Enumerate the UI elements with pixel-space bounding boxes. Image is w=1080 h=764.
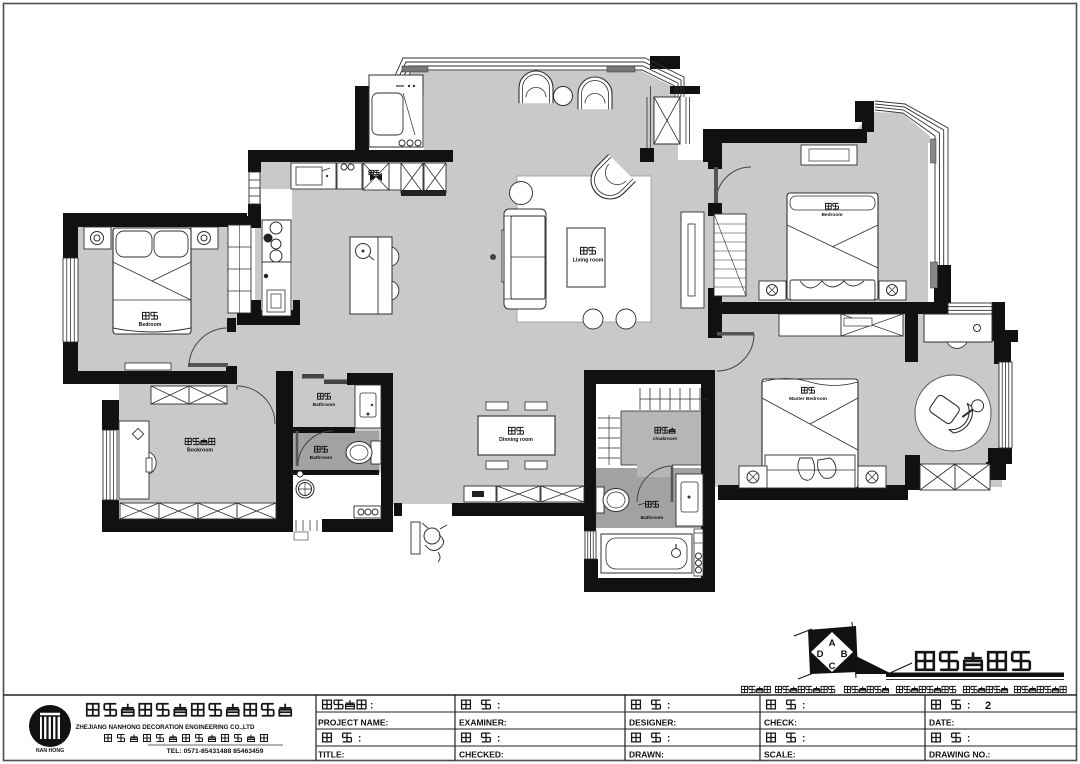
svg-text:Bookroom: Bookroom bbox=[187, 448, 213, 454]
svg-text:Bathroom: Bathroom bbox=[310, 455, 333, 461]
svg-text:NAN HONG: NAN HONG bbox=[36, 748, 64, 754]
svg-text:A: A bbox=[829, 638, 836, 649]
svg-text::: : bbox=[802, 734, 805, 745]
svg-text:Bedroom: Bedroom bbox=[139, 322, 162, 328]
svg-text:SCALE:: SCALE: bbox=[764, 750, 796, 760]
svg-text:EXAMINER:: EXAMINER: bbox=[459, 718, 507, 728]
svg-text::: : bbox=[358, 734, 361, 745]
svg-text:B: B bbox=[841, 649, 848, 660]
svg-text:2: 2 bbox=[985, 700, 991, 712]
svg-text:CHECK:: CHECK: bbox=[764, 718, 797, 728]
svg-text::: : bbox=[967, 734, 970, 745]
svg-text:TITLE:: TITLE: bbox=[318, 750, 345, 760]
svg-text:CHECKED:: CHECKED: bbox=[459, 750, 504, 760]
svg-text:Bathroom: Bathroom bbox=[641, 515, 664, 521]
svg-text:Dinning room: Dinning room bbox=[499, 437, 533, 443]
svg-text::: : bbox=[667, 734, 670, 745]
svg-text:D: D bbox=[817, 649, 824, 660]
svg-text::: : bbox=[967, 701, 970, 712]
svg-text:Master Bedroom: Master Bedroom bbox=[789, 396, 827, 402]
svg-text:DRAWN:: DRAWN: bbox=[629, 750, 664, 760]
svg-text:TEL: 0571-85431488 85463459: TEL: 0571-85431488 85463459 bbox=[167, 748, 264, 755]
svg-text:PROJECT NAME:: PROJECT NAME: bbox=[318, 718, 389, 728]
svg-text:ZHEJIANG NANHONG DECORATION EN: ZHEJIANG NANHONG DECORATION ENGINEERING … bbox=[76, 724, 255, 731]
svg-text:Bedroom: Bedroom bbox=[821, 212, 842, 218]
svg-text::: : bbox=[497, 734, 500, 745]
svg-text::: : bbox=[667, 701, 670, 712]
svg-text::: : bbox=[802, 701, 805, 712]
svg-text:DRAWING NO.:: DRAWING NO.: bbox=[929, 750, 991, 760]
svg-text:Living room: Living room bbox=[573, 257, 604, 263]
svg-text:cloakroom: cloakroom bbox=[653, 436, 677, 442]
svg-text::: : bbox=[497, 701, 500, 712]
svg-text:DATE:: DATE: bbox=[929, 718, 955, 728]
svg-text:C: C bbox=[829, 661, 836, 672]
svg-text:DESIGNER:: DESIGNER: bbox=[629, 718, 676, 728]
svg-text:Bathroom: Bathroom bbox=[313, 402, 336, 408]
svg-text::: : bbox=[370, 701, 373, 712]
